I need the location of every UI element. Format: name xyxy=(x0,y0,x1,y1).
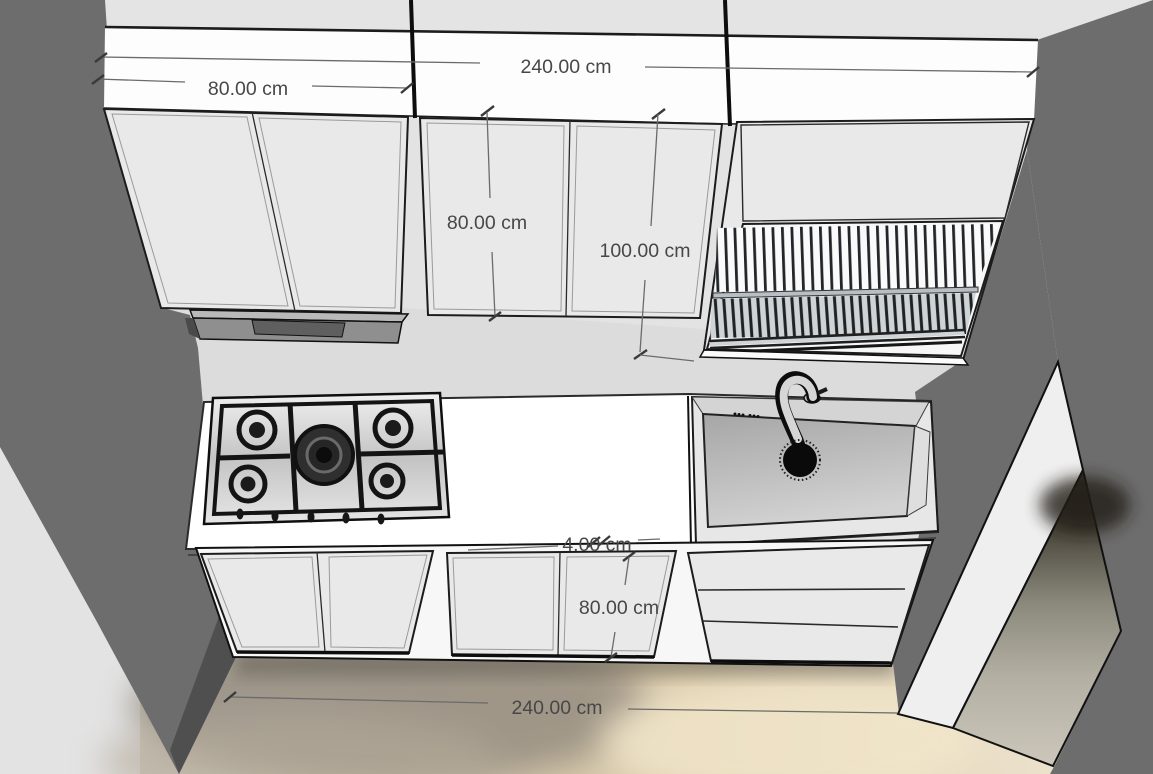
dim-label-upper-run-width[interactable]: 240.00 cm xyxy=(520,56,611,78)
dim-label-base-run-width[interactable]: 240.00 cm xyxy=(511,697,602,719)
burner-center xyxy=(295,426,353,484)
dim-label-upper-middle-height[interactable]: 80.00 cm xyxy=(447,212,527,234)
dim-label-base-height[interactable]: 80.00 cm xyxy=(579,597,659,619)
range-hood[interactable] xyxy=(185,310,408,343)
dim-label-upper-left-width[interactable]: 80.00 cm xyxy=(208,78,288,100)
faucet-spray-head xyxy=(783,443,817,477)
dim-label-counter-thickness[interactable]: 4.00 cm xyxy=(562,534,631,556)
base-cabinet-drawers[interactable] xyxy=(688,545,929,663)
base-cabinets[interactable] xyxy=(196,540,933,666)
kitchen-sink[interactable] xyxy=(692,378,938,545)
dish-rack xyxy=(708,224,999,353)
gas-cooktop[interactable] xyxy=(204,393,449,525)
dim-label-upper-right-height[interactable]: 100.00 cm xyxy=(599,240,690,262)
model-viewport[interactable]: 240.00 cm 80.00 cm 80.00 cm 100.00 cm xyxy=(0,0,1153,774)
base-cabinet-left[interactable] xyxy=(201,551,433,653)
